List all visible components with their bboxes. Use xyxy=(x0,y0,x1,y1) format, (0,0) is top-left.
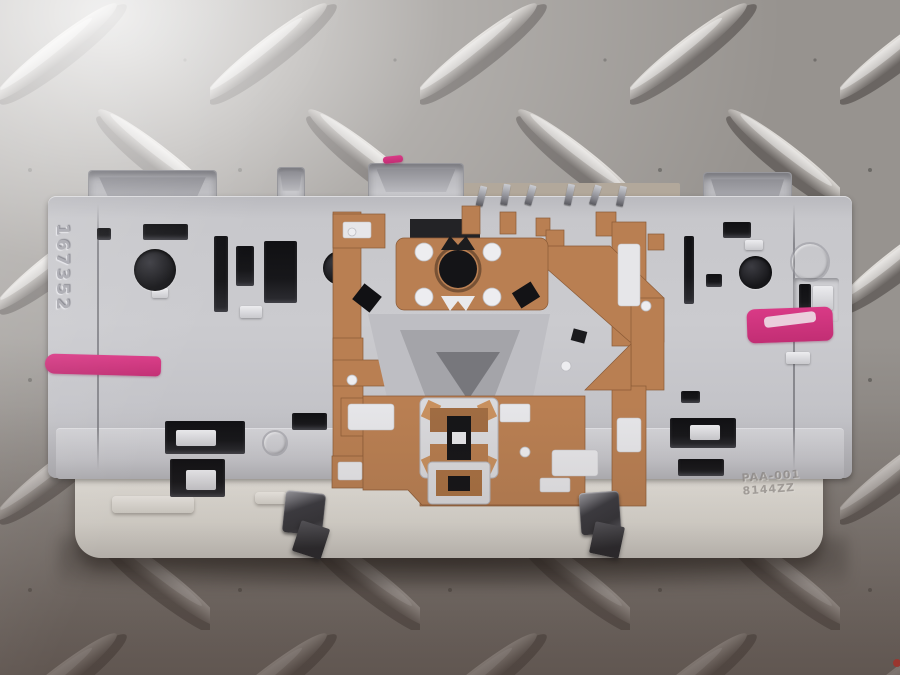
bulb-contact-lower xyxy=(428,462,490,504)
photo-stage: 167352 PAA-001 8144ZZ xyxy=(0,0,900,675)
light-module: 167352 PAA-001 8144ZZ xyxy=(0,0,900,675)
serial-number-text: 167352 xyxy=(52,224,72,334)
paint-mark-left xyxy=(45,353,161,376)
